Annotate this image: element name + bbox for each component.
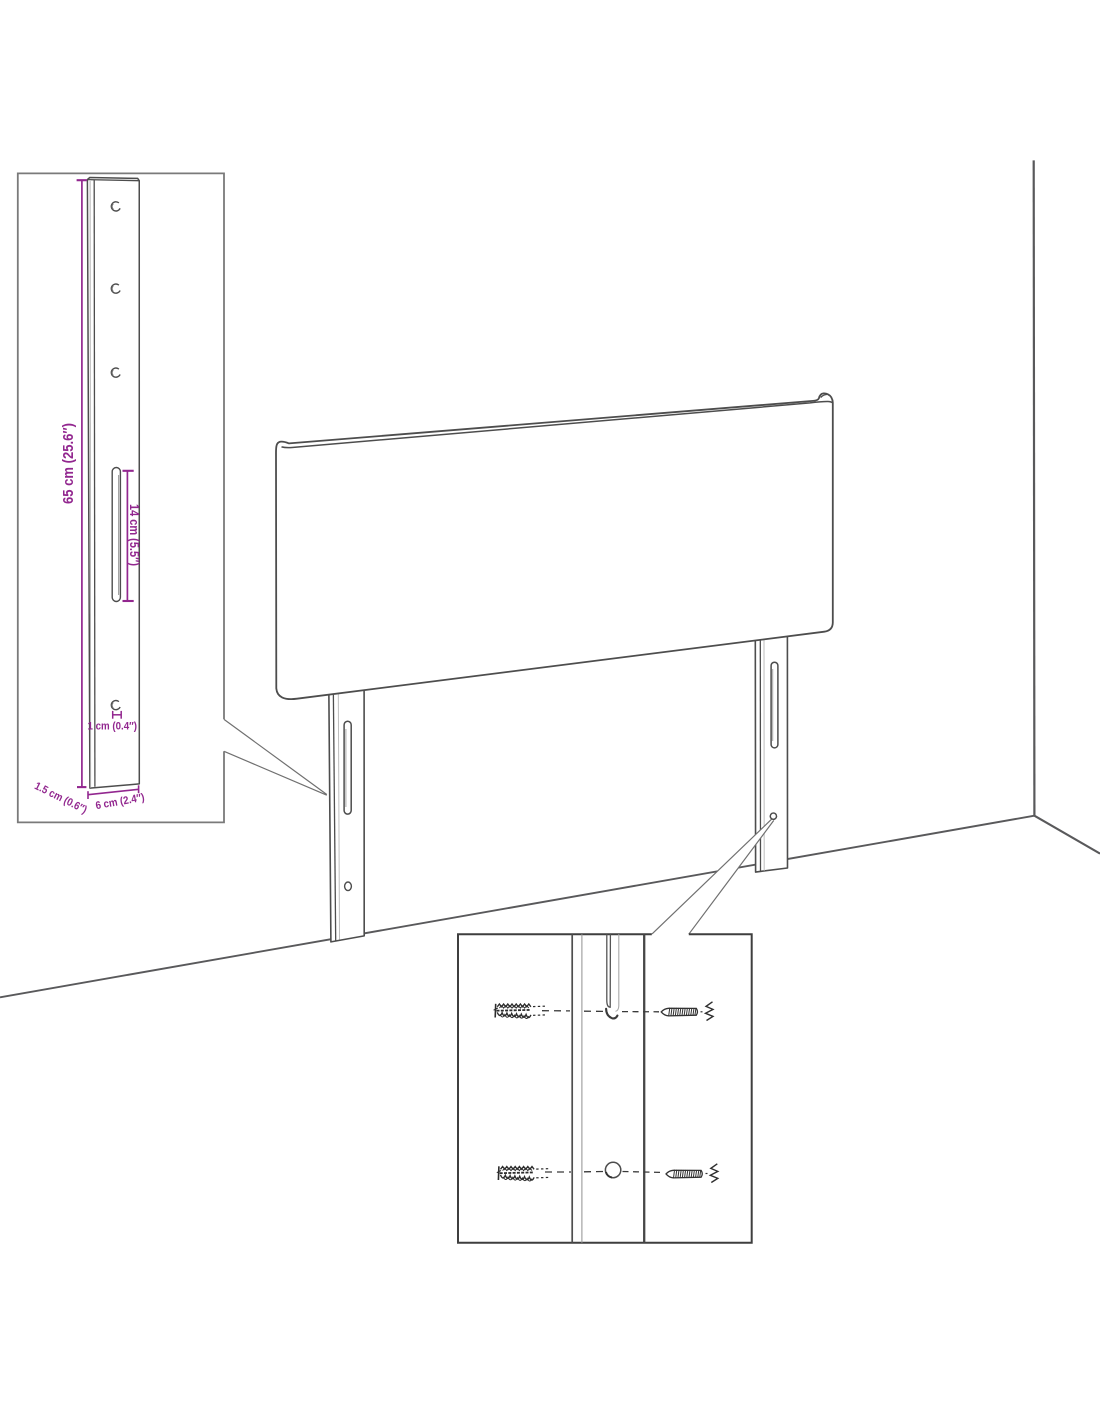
svg-text:1.5 cm (0.6″): 1.5 cm (0.6″) [32,780,89,816]
svg-text:65 cm (25.6″): 65 cm (25.6″) [61,423,77,504]
svg-text:6 cm (2.4″): 6 cm (2.4″) [95,792,146,812]
svg-text:1 cm (0.4″): 1 cm (0.4″) [88,720,138,732]
svg-text:14 cm (5.5″): 14 cm (5.5″) [127,504,142,566]
